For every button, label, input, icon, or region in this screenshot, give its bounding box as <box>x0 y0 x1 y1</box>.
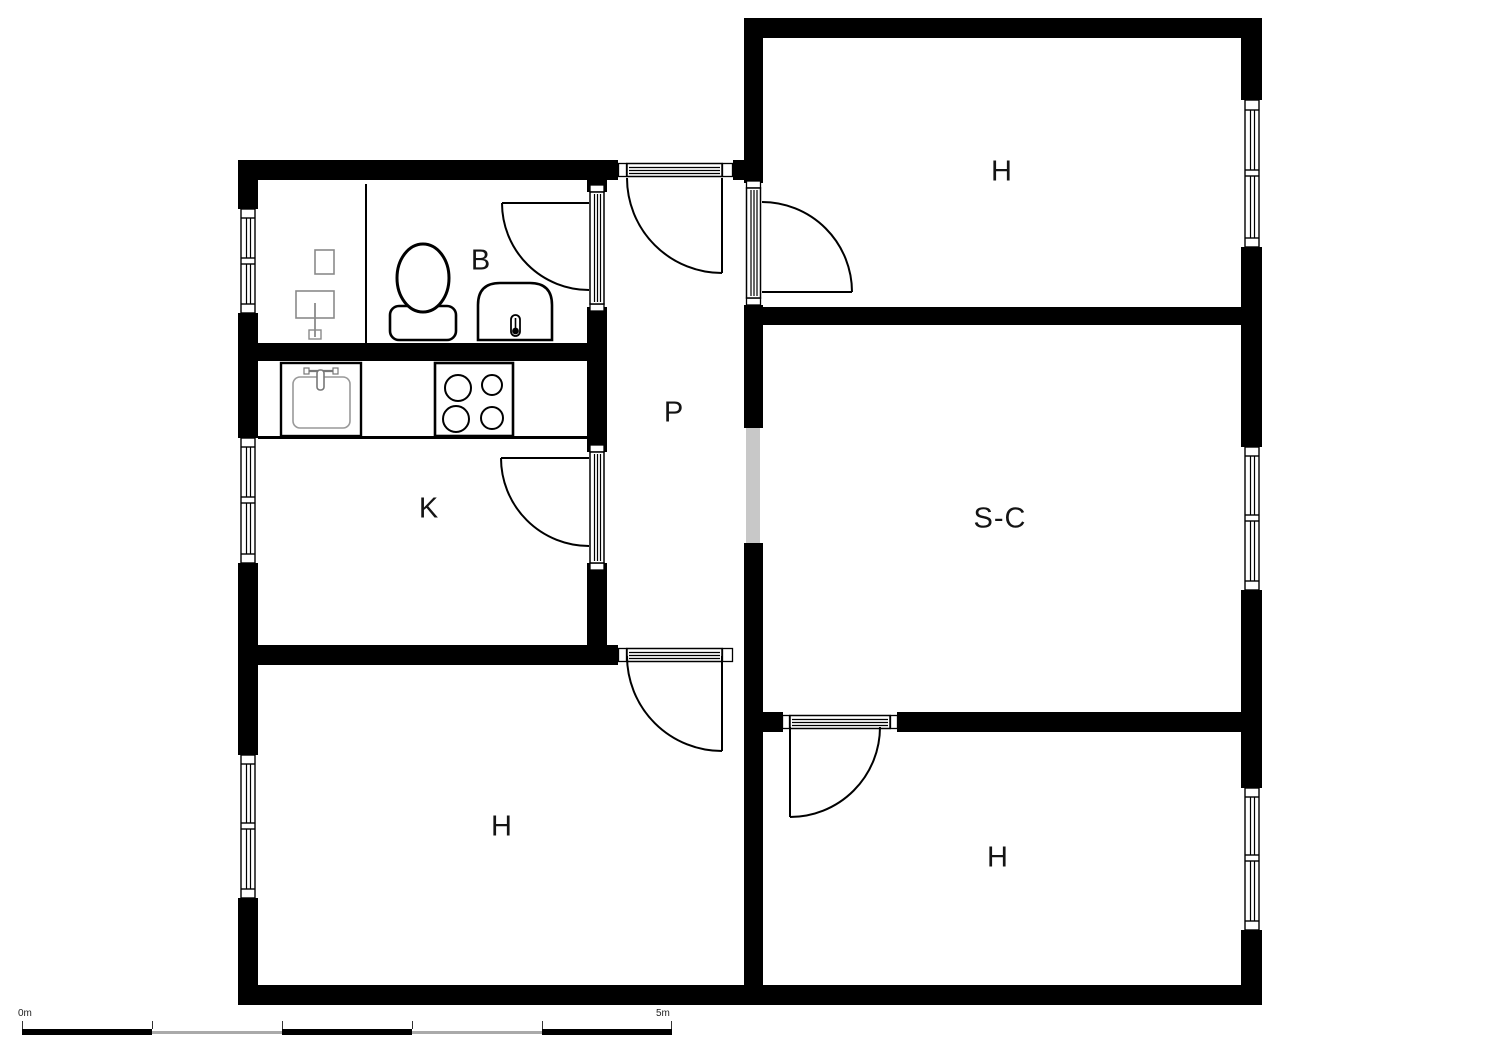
room-label-kitchen: K <box>419 493 439 526</box>
room-label-living-room: S-C <box>974 503 1027 536</box>
floor-plan: H S-C H H K B P 0m 5m <box>0 0 1500 1061</box>
window-bathroom <box>241 209 255 313</box>
room-label-bathroom: B <box>471 245 491 278</box>
window-kitchen <box>241 438 255 563</box>
toilet <box>390 244 456 340</box>
scale-bar-start-label: 0m <box>18 1008 32 1019</box>
room-top-right-door <box>747 181 853 305</box>
scale-bar-tick-1 <box>152 1021 153 1029</box>
room-label-bottom-left: H <box>491 811 513 844</box>
scale-bar-tick-2 <box>282 1021 283 1029</box>
stove <box>435 363 513 436</box>
window-room-bottom-right <box>1245 788 1259 930</box>
scale-bar-end-label: 5m <box>656 1008 670 1019</box>
room-label-hallway: P <box>664 397 684 430</box>
window-room-bottom-left <box>241 755 255 898</box>
room-bottom-left-door <box>619 649 733 752</box>
scale-bar-segment-3 <box>282 1029 412 1035</box>
washbasin <box>296 250 334 339</box>
scale-bar-segment-1 <box>22 1029 152 1035</box>
scale-bar-tick-3 <box>412 1021 413 1029</box>
plan-linework <box>0 0 1500 1061</box>
kitchen-sink <box>281 363 361 436</box>
water-heater <box>478 283 552 340</box>
entrance-door <box>619 164 733 274</box>
scale-bar-tick-4 <box>542 1021 543 1029</box>
kitchen-door <box>501 445 604 570</box>
room-label-top-right: H <box>991 156 1013 189</box>
scale-bar-tick-5 <box>671 1021 672 1029</box>
room-bottom-right-door <box>783 716 898 818</box>
scale-bar-segment-5 <box>542 1029 672 1035</box>
window-living-room <box>1245 447 1259 590</box>
scale-bar-tick-0 <box>22 1021 23 1029</box>
room-label-bottom-right: H <box>987 842 1009 875</box>
window-room-top-right <box>1245 100 1259 247</box>
